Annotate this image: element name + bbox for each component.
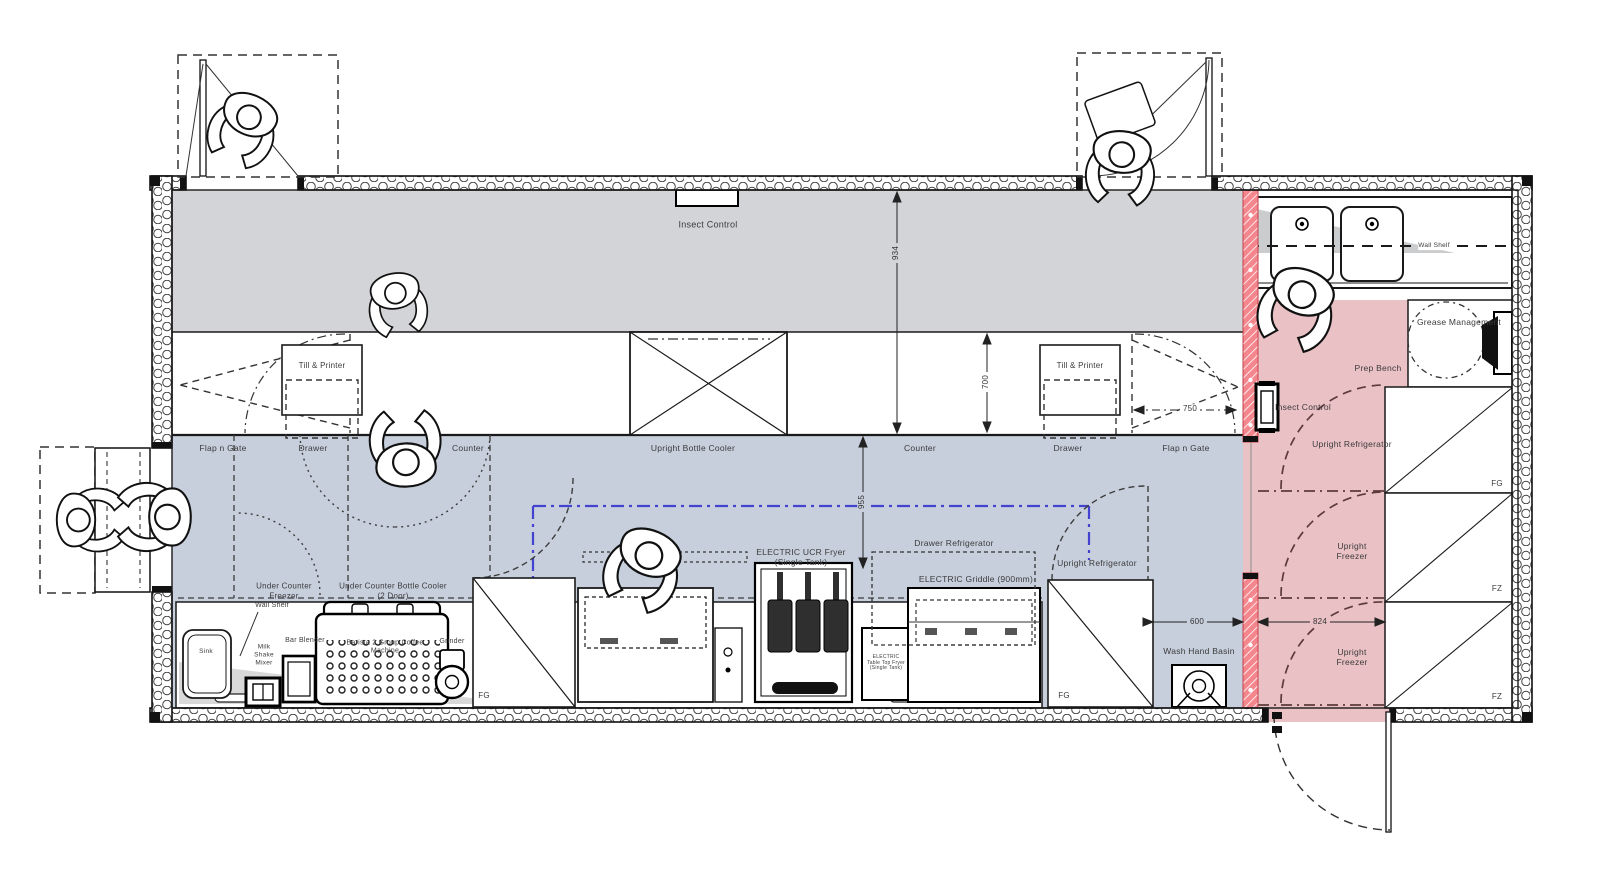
dim-corridor-width: 824 xyxy=(1310,617,1330,627)
label-fz-2: FZ xyxy=(1492,692,1502,702)
under-counter-fridge-left xyxy=(473,578,575,707)
label-electric-griddle: ELECTRIC Griddle (900mm) xyxy=(919,574,1033,584)
insect-control-device-top xyxy=(676,190,738,206)
upright-refrigerator-bottom xyxy=(1048,580,1153,707)
label-till-printer-left: Till & Printer xyxy=(299,361,346,371)
bar-blender xyxy=(283,656,315,702)
upright-bottle-cooler-box xyxy=(630,332,787,435)
label-fg-left: FG xyxy=(478,691,490,701)
label-insect-control-right: Insect Control xyxy=(1274,402,1332,412)
label-coffee-machine: Barista 2 Group Coffee Machine xyxy=(341,640,429,657)
person-top-left xyxy=(199,83,288,174)
upright-refrigerator-right-box xyxy=(1385,387,1513,493)
label-milk-shake-mixer: Milk Shake Mixer xyxy=(248,643,280,666)
bottom-right-door xyxy=(1272,712,1391,832)
label-electric-ucr-fryer: ELECTRIC UCR Fryer (Single Tank) xyxy=(742,547,860,567)
label-grease-management: Grease Management xyxy=(1413,317,1505,327)
label-table-top-fryer: ELECTRIC Table Top Fryer (Single Tank) xyxy=(866,655,906,672)
grease-management-room xyxy=(1408,300,1513,387)
label-upright-freezer-2: Upright Freezer xyxy=(1322,647,1382,667)
label-fg-bottom: FG xyxy=(1058,691,1070,701)
label-wall-shelf-left: Wall Shelf xyxy=(255,602,289,610)
label-wash-hand-basin: Wash Hand Basin xyxy=(1156,646,1242,656)
label-fg-right: FG xyxy=(1491,479,1503,489)
dim-basin-gap: 600 xyxy=(1187,617,1207,627)
label-sink: Sink xyxy=(199,648,213,656)
label-under-counter-bottle-cooler: Under Counter Bottle Cooler (2 Door) xyxy=(337,581,449,600)
dim-counter-depth: 700 xyxy=(981,372,991,392)
label-counter-left: Counter xyxy=(452,443,484,453)
label-flap-n-gate-left: Flap n Gate xyxy=(199,443,246,453)
electric-ucr-fryer xyxy=(755,563,852,702)
label-bar-blender: Bar Blender xyxy=(283,637,327,645)
label-upright-refrigerator-bottom: Upright Refrigerator xyxy=(1054,558,1140,568)
label-drawer-left: Drawer xyxy=(299,443,328,453)
label-upright-bottle-cooler: Upright Bottle Cooler xyxy=(651,443,735,453)
dim-walkway-depth: 934 xyxy=(891,243,901,263)
label-under-counter-freezer: Under Counter Freezer xyxy=(246,581,322,600)
grinder xyxy=(436,650,468,698)
label-insect-control-top: Insect Control xyxy=(678,220,737,231)
label-grinder: Grinder xyxy=(439,638,464,646)
label-flap-n-gate-right: Flap n Gate xyxy=(1162,443,1209,453)
label-wall-shelf-right: Wall Shelf xyxy=(1418,242,1450,250)
floor-plan: Insect Control Till & Printer Till & Pri… xyxy=(0,0,1600,890)
dim-aisle-width: 955 xyxy=(857,492,867,512)
small-appliance-box xyxy=(715,628,742,702)
person-with-tray xyxy=(1083,81,1157,207)
sink-unit-left xyxy=(183,630,231,698)
label-prep-bench: Prep Bench xyxy=(1355,363,1402,373)
label-upright-refrigerator-right: Upright Refrigerator xyxy=(1309,439,1395,449)
label-drawer-right: Drawer xyxy=(1054,443,1083,453)
label-counter-right: Counter xyxy=(904,443,936,453)
label-fz-1: FZ xyxy=(1492,584,1502,594)
label-upright-freezer-1: Upright Freezer xyxy=(1322,541,1382,561)
dim-gate-width: 750 xyxy=(1180,404,1200,414)
milk-shake-mixer xyxy=(246,678,280,706)
label-till-printer-right: Till & Printer xyxy=(1057,361,1104,371)
label-drawer-refrigerator: Drawer Refrigerator xyxy=(914,538,993,548)
wash-hand-basin xyxy=(1172,665,1226,707)
